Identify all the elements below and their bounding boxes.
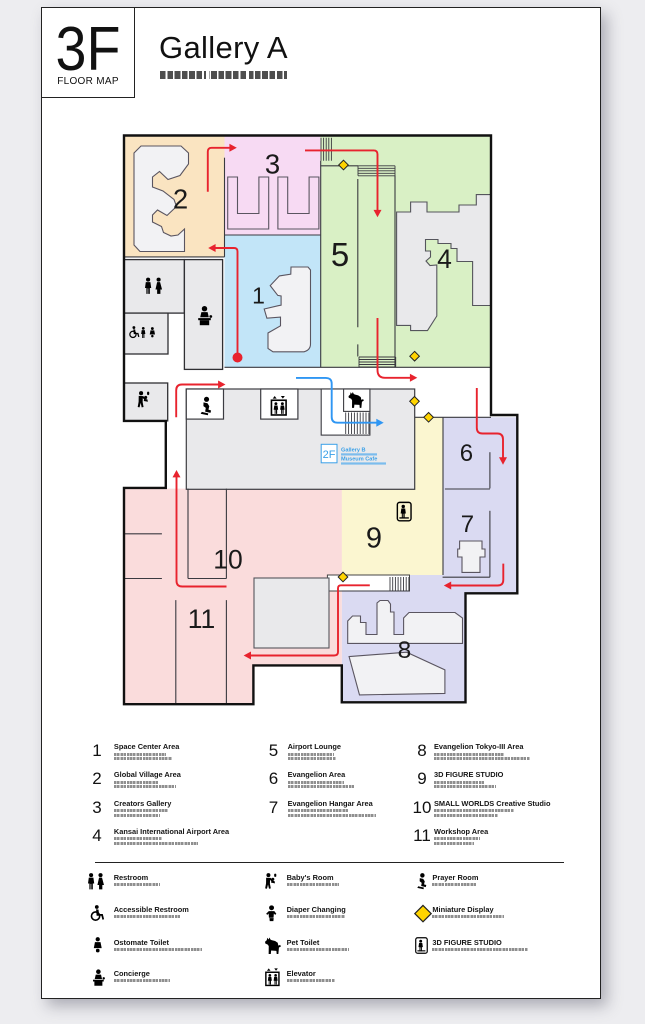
svg-text:10: 10 [213,545,242,575]
svg-text:Gallery B: Gallery B [341,448,366,454]
svg-text:2: 2 [173,183,188,214]
svg-text:9: 9 [366,522,382,554]
svg-text:7: 7 [461,511,474,538]
svg-text:6: 6 [460,440,473,467]
svg-text:11: 11 [188,604,216,634]
svg-text:1: 1 [252,283,265,309]
svg-text:3: 3 [265,148,280,179]
svg-text:Museum Cafe: Museum Cafe [341,457,377,463]
svg-text:5: 5 [331,236,349,273]
svg-text:8: 8 [398,637,412,664]
svg-text:4: 4 [437,244,452,274]
svg-text:2F: 2F [323,449,336,461]
